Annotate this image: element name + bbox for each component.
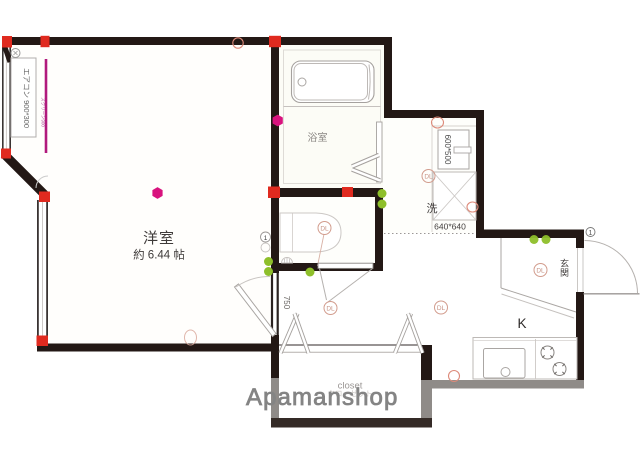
svg-text:DL: DL bbox=[536, 268, 545, 275]
svg-text:DL: DL bbox=[424, 174, 433, 181]
svg-text:DL: DL bbox=[326, 306, 335, 313]
svg-text:640*640: 640*640 bbox=[434, 222, 466, 232]
svg-text:浴室: 浴室 bbox=[308, 131, 328, 144]
svg-text:600*500: 600*500 bbox=[443, 135, 452, 165]
svg-text:1: 1 bbox=[264, 235, 268, 242]
svg-text:約 6.44 帖: 約 6.44 帖 bbox=[133, 248, 185, 262]
svg-text:関: 関 bbox=[560, 268, 569, 278]
svg-text:DL: DL bbox=[437, 305, 446, 312]
svg-text:洋室: 洋室 bbox=[143, 230, 175, 247]
svg-text:750: 750 bbox=[282, 296, 291, 310]
svg-text:K: K bbox=[517, 316, 526, 331]
svg-text:Apamanshop: Apamanshop bbox=[246, 384, 398, 411]
svg-text:1: 1 bbox=[589, 230, 593, 237]
svg-text:玄: 玄 bbox=[560, 258, 569, 269]
svg-text:DL: DL bbox=[320, 226, 329, 233]
svg-text:洗: 洗 bbox=[427, 202, 438, 215]
svg-text:エアコン 900*300: エアコン 900*300 bbox=[22, 68, 31, 128]
